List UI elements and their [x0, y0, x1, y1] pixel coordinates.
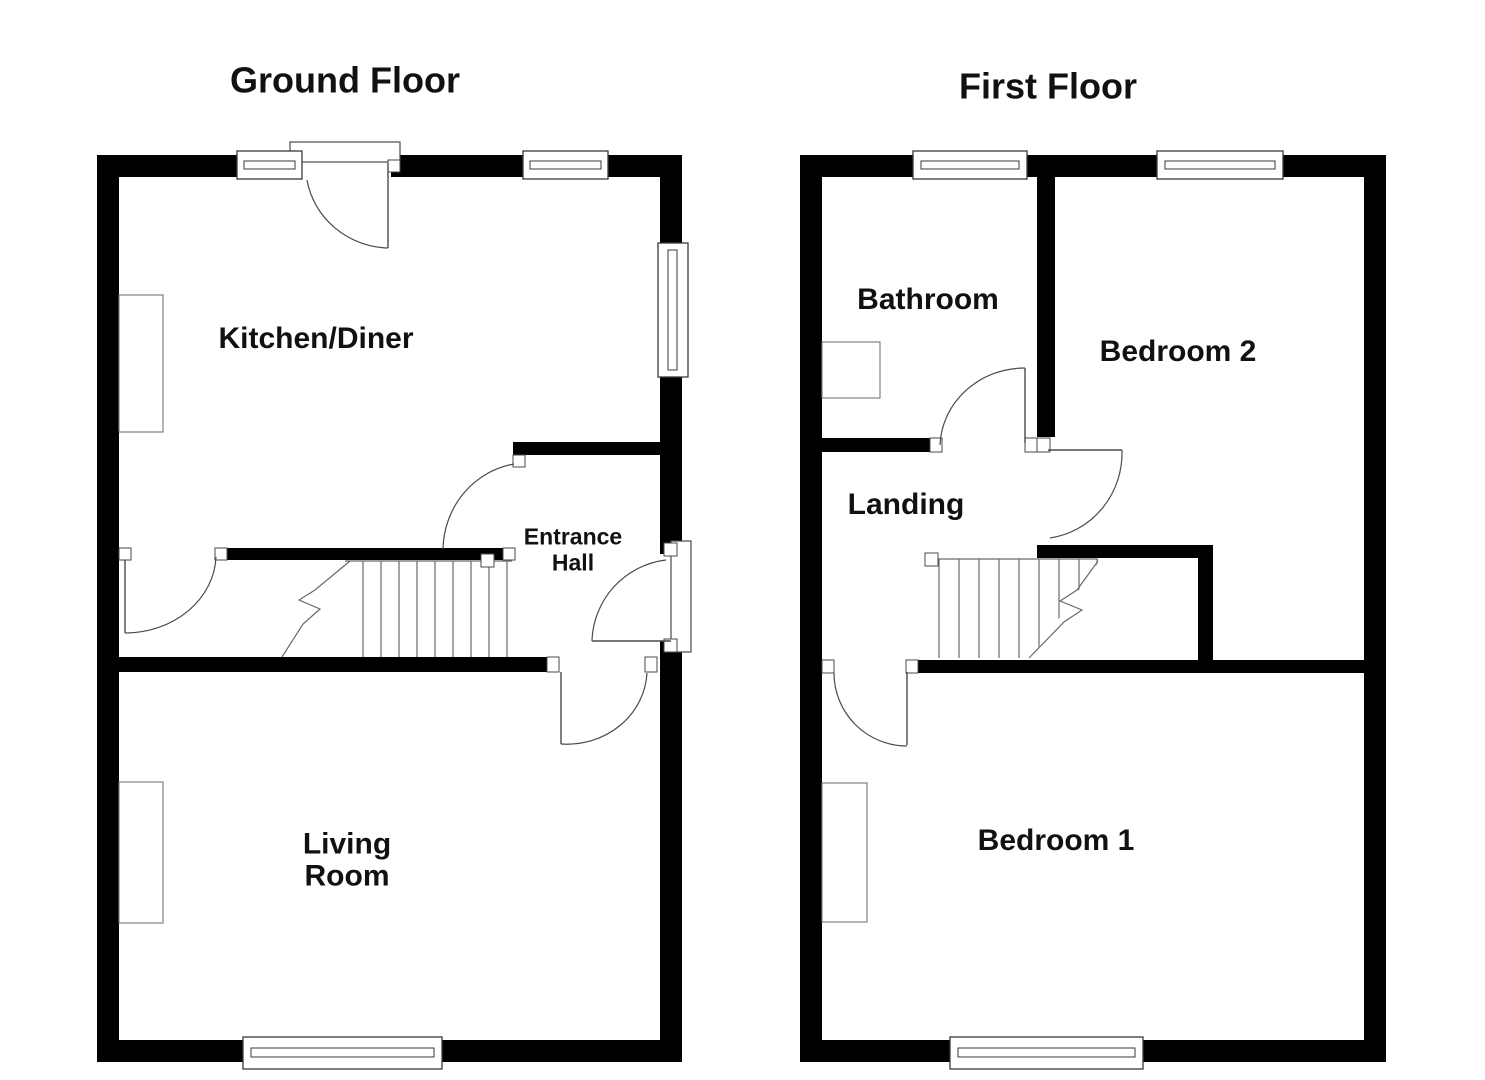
kitchen-window-right: [523, 151, 608, 179]
living-room-door: [561, 672, 647, 744]
bedroom2-label: Bedroom 2: [1100, 336, 1257, 368]
kitchen-window-side: [658, 243, 688, 377]
bedroom1-door: [834, 672, 907, 746]
ground-floor-stairs: [282, 554, 512, 657]
bedroom1-window: [950, 1037, 1143, 1069]
first-floor-title: First Floor: [959, 68, 1137, 107]
kitchen-diner-label: Kitchen/Diner: [218, 323, 413, 355]
living-room-label: Living Room: [303, 829, 391, 894]
bedroom2-window: [1157, 151, 1283, 179]
floorplan-drawing: [0, 0, 1485, 1080]
floorplan-canvas: Ground Floor First Floor Kitchen/Diner E…: [0, 0, 1485, 1080]
bathroom-door: [940, 368, 1025, 445]
bedroom1-chimney-breast: [822, 783, 867, 922]
ground-floor-walls: [97, 155, 682, 1062]
kitchen-window-left: [237, 151, 302, 179]
living-room-chimney-breast: [119, 782, 163, 923]
ground-floor-title: Ground Floor: [230, 62, 460, 101]
back-door: [290, 142, 400, 248]
living-room-window: [243, 1037, 442, 1069]
entrance-hall-label: Entrance Hall: [524, 524, 622, 577]
landing-label: Landing: [848, 489, 965, 521]
bedroom1-label: Bedroom 1: [978, 825, 1135, 857]
ground-floor-plan: [97, 142, 691, 1069]
bathroom-basin: [822, 342, 880, 398]
first-floor-stairs: [925, 553, 1098, 658]
kitchen-hall-door-right-arc: [443, 464, 514, 549]
bedroom2-door: [1048, 450, 1122, 538]
bathroom-label: Bathroom: [857, 284, 999, 316]
kitchen-hall-door-left: [125, 557, 216, 633]
kitchen-chimney-breast: [119, 295, 163, 432]
bathroom-window: [913, 151, 1027, 179]
